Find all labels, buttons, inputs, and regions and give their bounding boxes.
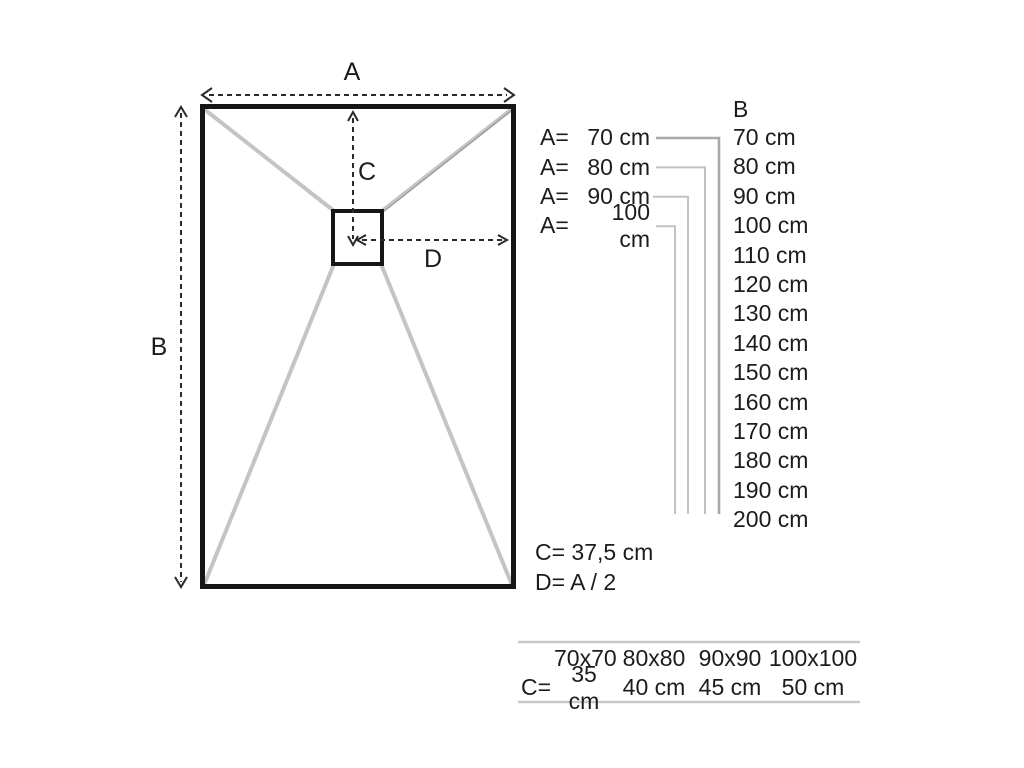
a-size-list: A= 70 cm A= 80 cm A= 90 cm A= 100 cm <box>540 123 650 241</box>
size-header: 90x90 <box>694 645 766 672</box>
shower-tray-dimension-sheet: A B C D A= 70 cm A= 80 cm A= 90 cm A= 10… <box>0 0 1024 768</box>
b-value: 140 cm <box>733 329 808 358</box>
dim-label-a: A <box>340 58 364 87</box>
b-value: 80 cm <box>733 152 808 181</box>
b-value: 100 cm <box>733 211 808 240</box>
a-size-row: A= 80 cm <box>540 152 650 181</box>
b-size-list: 70 cm 80 cm 90 cm 100 cm 110 cm 120 cm 1… <box>733 123 808 535</box>
d-formula: D= A / 2 <box>535 568 616 596</box>
a-row-label: A= <box>540 212 576 239</box>
size-header: 100x100 <box>766 645 860 672</box>
b-value: 160 cm <box>733 388 808 417</box>
b-value: 110 cm <box>733 241 808 270</box>
b-value: 190 cm <box>733 476 808 505</box>
b-value: 170 cm <box>733 417 808 446</box>
slope-line-bottom-right <box>381 264 512 585</box>
square-size-table: 70x70 80x80 90x90 100x100 C= 35 cm 40 cm… <box>518 644 860 702</box>
a-row-value: 100 cm <box>576 199 650 253</box>
dim-label-b: B <box>146 333 172 362</box>
c-value: 40 cm <box>614 674 694 701</box>
size-header: 80x80 <box>614 645 694 672</box>
leader-line-a100 <box>656 226 675 514</box>
b-value: 70 cm <box>733 123 808 152</box>
dim-label-d: D <box>421 245 445 274</box>
b-value: 130 cm <box>733 299 808 328</box>
c-value: 35 cm <box>554 661 614 715</box>
c-value: 50 cm <box>766 674 860 701</box>
a-row-label: A= <box>540 183 576 210</box>
a-size-row: A= 100 cm <box>540 211 650 240</box>
slope-line-bottom-left <box>204 264 334 585</box>
a-size-row: A= 70 cm <box>540 123 650 152</box>
c-value: 45 cm <box>694 674 766 701</box>
slope-line-top-right <box>382 109 512 211</box>
dim-label-c: C <box>355 158 379 187</box>
c-row-label: C= <box>518 674 554 701</box>
b-value: 200 cm <box>733 505 808 534</box>
diagram-canvas <box>0 0 1024 768</box>
slope-line-top-left <box>204 109 334 211</box>
dim-arrow-a-head-right <box>504 88 514 102</box>
b-value: 150 cm <box>733 358 808 387</box>
a-row-value: 80 cm <box>576 154 650 181</box>
slope-line-top-right-core <box>383 110 512 212</box>
a-row-value: 70 cm <box>576 124 650 151</box>
leader-line-a80 <box>656 167 705 514</box>
a-row-label: A= <box>540 154 576 181</box>
b-value: 180 cm <box>733 446 808 475</box>
c-formula: C= 37,5 cm <box>535 538 653 566</box>
b-column-header: B <box>733 95 748 123</box>
a-row-label: A= <box>540 124 576 151</box>
leader-line-a90 <box>653 197 688 514</box>
b-value: 90 cm <box>733 182 808 211</box>
b-value: 120 cm <box>733 270 808 299</box>
